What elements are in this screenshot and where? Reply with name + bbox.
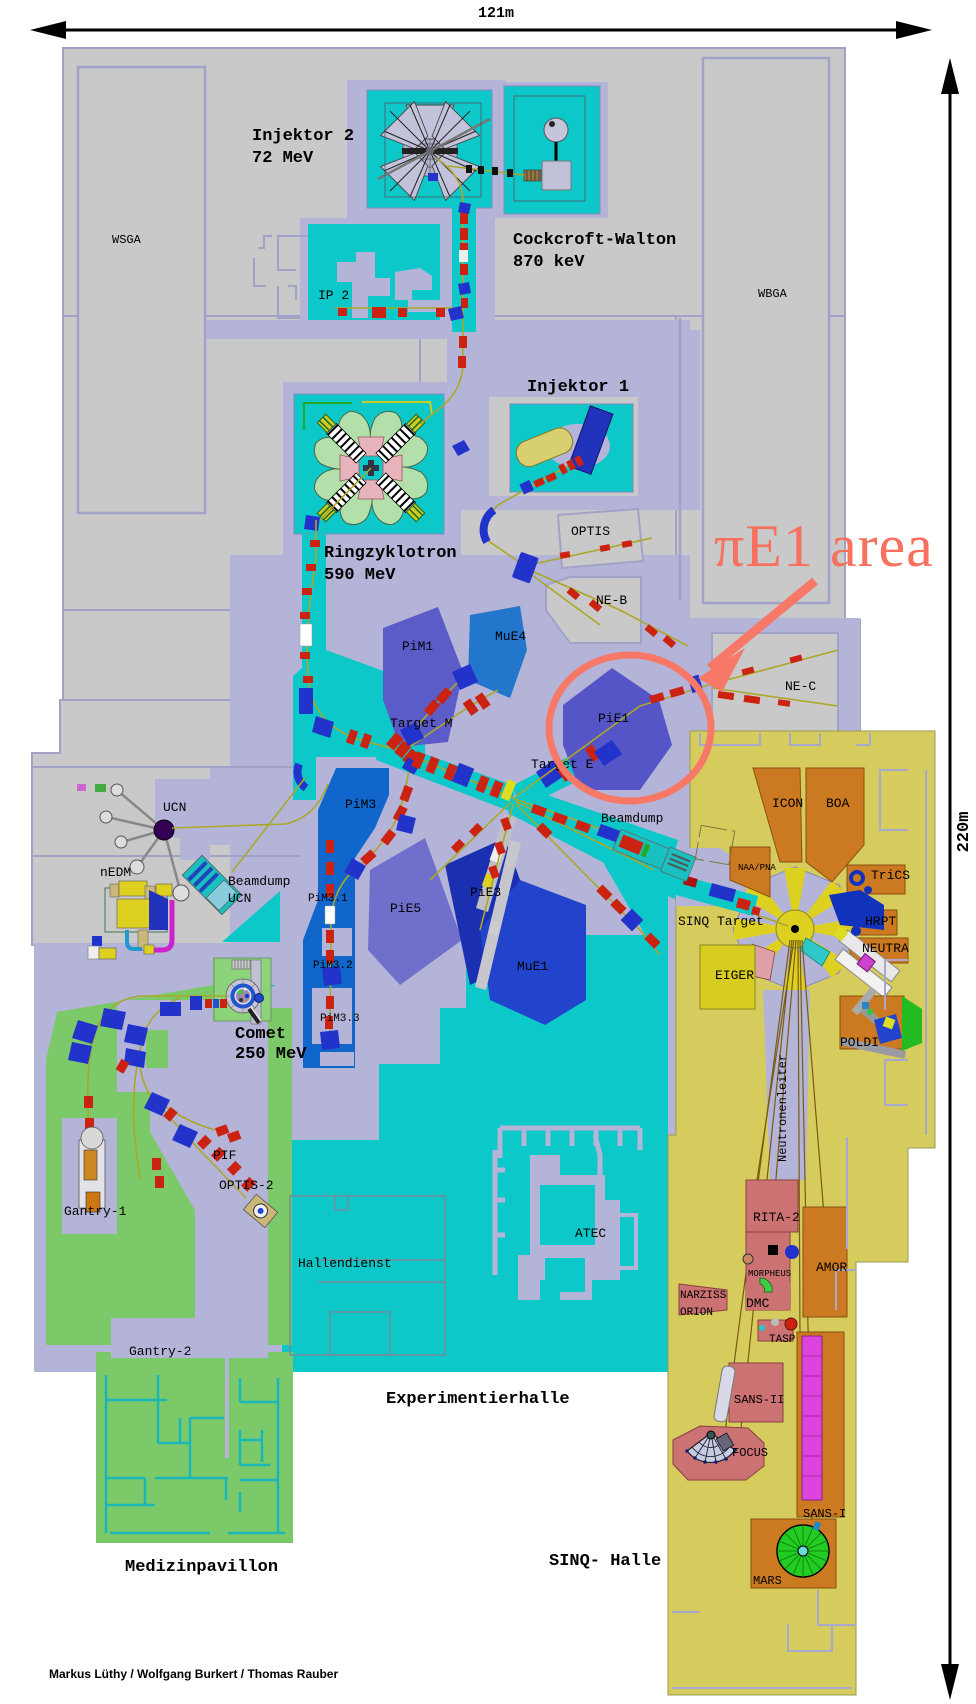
svg-text:NE-B: NE-B [596,593,627,608]
svg-text:220m: 220m [955,812,974,853]
svg-text:SINQ- Halle: SINQ- Halle [549,1552,661,1571]
svg-text:590 MeV: 590 MeV [324,566,396,585]
svg-text:FOCUS: FOCUS [732,1446,768,1460]
svg-text:Gantry-1: Gantry-1 [64,1204,127,1219]
svg-text:PiM3: PiM3 [345,797,376,812]
svg-text:IP 2: IP 2 [318,288,349,303]
svg-text:Beamdump: Beamdump [601,811,663,826]
svg-text:870 keV: 870 keV [513,253,585,272]
svg-text:Experimentierhalle: Experimentierhalle [386,1390,570,1409]
svg-text:PiE3: PiE3 [470,885,501,900]
svg-text:SANS-I: SANS-I [803,1507,846,1521]
svg-text:Comet: Comet [235,1025,286,1044]
svg-text:SINQ Target: SINQ Target [678,914,764,929]
svg-text:PiE5: PiE5 [390,901,421,916]
svg-text:NAA/PNA: NAA/PNA [738,863,776,873]
svg-text:ORION: ORION [680,1307,713,1319]
svg-text:ICON: ICON [772,796,803,811]
svg-text:NARZISS: NARZISS [680,1290,727,1302]
svg-text:HRPT: HRPT [865,914,896,929]
svg-text:πE1 area: πE1 area [714,513,934,579]
svg-text:OPTIS: OPTIS [571,524,610,539]
svg-text:PiM1: PiM1 [402,639,433,654]
svg-text:nEDM: nEDM [100,865,131,880]
svg-text:Markus Lüthy / Wolfgang Burker: Markus Lüthy / Wolfgang Burkert / Thomas… [49,1667,338,1681]
svg-text:MuE4: MuE4 [495,629,526,644]
svg-text:PiM3.2: PiM3.2 [313,960,353,972]
svg-text:PiE1: PiE1 [598,711,629,726]
svg-text:72 MeV: 72 MeV [252,149,314,168]
svg-text:250 MeV: 250 MeV [235,1045,307,1064]
svg-text:NEUTRA: NEUTRA [862,941,909,956]
svg-text:Medizinpavillon: Medizinpavillon [125,1558,278,1577]
svg-text:Cockcroft-Walton: Cockcroft-Walton [513,231,676,250]
svg-text:TASP: TASP [769,1334,796,1346]
svg-text:PiM3.3: PiM3.3 [320,1013,360,1025]
svg-text:NE-C: NE-C [785,679,816,694]
svg-text:RITA-2: RITA-2 [753,1210,800,1225]
svg-text:AMOR: AMOR [816,1260,847,1275]
svg-text:Hallendienst: Hallendienst [298,1256,392,1271]
svg-text:PIF: PIF [213,1148,236,1163]
svg-text:MARS: MARS [753,1574,782,1588]
svg-text:PiM3.1: PiM3.1 [308,893,348,905]
svg-text:OPTIS-2: OPTIS-2 [219,1178,274,1193]
svg-text:MORPHEUS: MORPHEUS [748,1269,791,1279]
svg-text:BOA: BOA [826,796,850,811]
svg-text:POLDI: POLDI [840,1035,879,1050]
svg-text:EIGER: EIGER [715,968,754,983]
svg-text:ATEC: ATEC [575,1226,606,1241]
svg-text:Ringzyklotron: Ringzyklotron [324,544,457,563]
svg-text:Injektor 2: Injektor 2 [252,127,354,146]
svg-text:MuE1: MuE1 [517,959,548,974]
svg-text:UCN: UCN [163,800,186,815]
svg-text:Beamdump: Beamdump [228,874,290,889]
svg-text:TriCS: TriCS [871,868,910,883]
svg-text:Neutronenleiter: Neutronenleiter [776,1054,790,1162]
svg-text:DMC: DMC [746,1296,770,1311]
svg-text:WSGA: WSGA [112,233,142,247]
svg-text:Injektor 1: Injektor 1 [527,378,629,397]
svg-text:UCN: UCN [228,891,251,906]
svg-text:Gantry-2: Gantry-2 [129,1344,191,1359]
svg-text:Target M: Target M [390,716,452,731]
svg-text:WBGA: WBGA [758,287,788,301]
svg-text:SANS-II: SANS-II [734,1393,784,1407]
svg-text:121m: 121m [478,5,514,22]
